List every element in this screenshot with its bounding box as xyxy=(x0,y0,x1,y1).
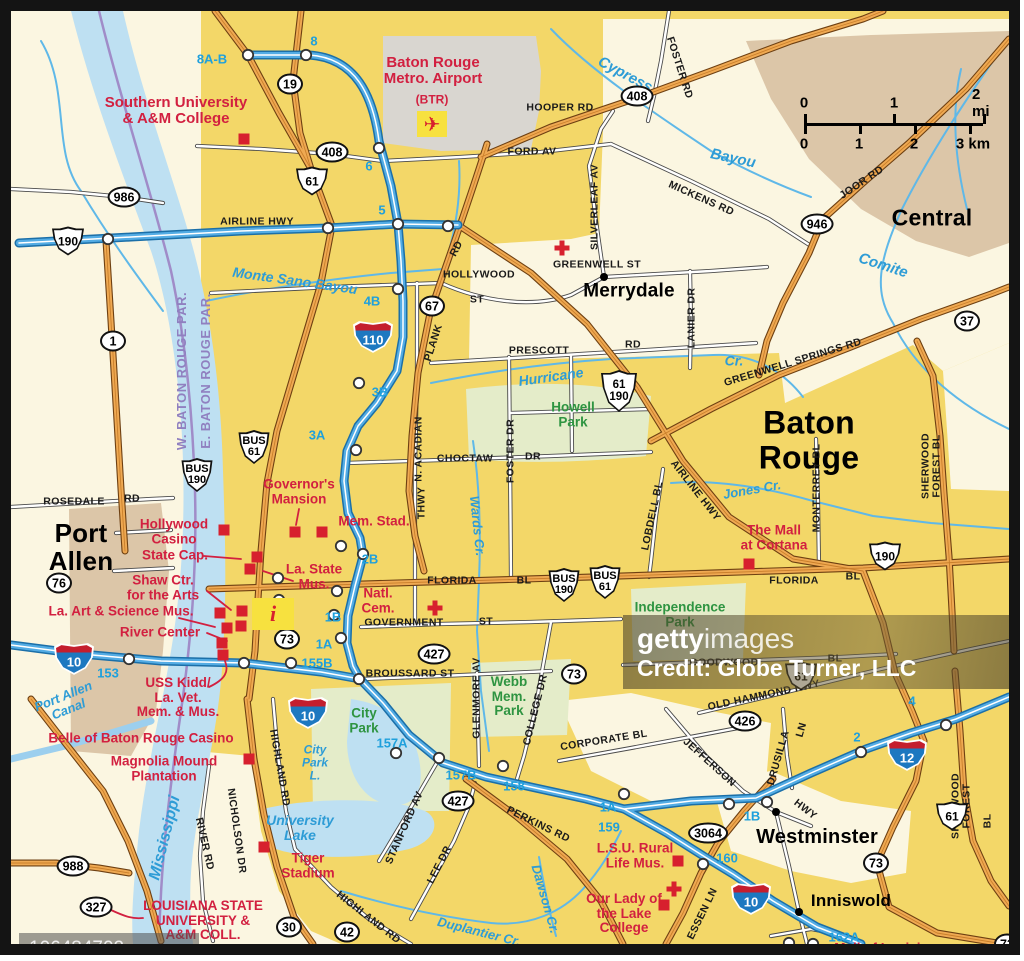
poi-square-marker xyxy=(222,623,233,634)
exit-number: 2 xyxy=(853,730,860,745)
route-shield: 73 xyxy=(561,664,587,685)
map-screenshot: Port AllenMerrydaleBaton RougeCentralWes… xyxy=(0,0,1024,961)
route-shield: 73 xyxy=(994,934,1020,955)
exit-number: 162A xyxy=(828,930,859,945)
poi-square-marker xyxy=(245,564,256,575)
route-shield: 408 xyxy=(316,142,349,163)
watermark-image-id: 106484702 xyxy=(19,933,199,955)
exit-number: 159 xyxy=(598,820,620,835)
exit-number: 4 xyxy=(908,694,915,709)
poi-square-marker xyxy=(290,527,301,538)
scale-label-km: 1 xyxy=(855,136,863,153)
poi-square-marker xyxy=(744,559,755,570)
interstate-number: 12 xyxy=(900,751,914,766)
airplane-icon: ✈ xyxy=(417,111,447,137)
hospital-cross-icon xyxy=(667,882,682,897)
exit-number: 3B xyxy=(372,385,389,400)
route-shield: 986 xyxy=(108,187,141,208)
interstate-number: 110 xyxy=(363,333,384,348)
watermark-credit: Credit: Globe Turner, LLC xyxy=(637,655,916,682)
route-shield: 73 xyxy=(863,853,889,874)
watermark-getty-bold: getty xyxy=(637,623,704,654)
scale-bar-km-tick xyxy=(914,124,917,134)
poi-square-marker xyxy=(673,856,684,867)
scale-bar-km-tick xyxy=(969,124,972,134)
exit-number: 155B xyxy=(301,656,332,671)
route-shield: 67 xyxy=(419,296,445,317)
poi-square-marker xyxy=(218,650,229,661)
scale-bar-km-tick xyxy=(804,124,807,134)
scale-label-mi: 2 mi xyxy=(972,86,998,120)
hospital-cross-icon xyxy=(428,601,443,616)
exit-number: 1A xyxy=(600,800,617,815)
scale-bar-mi-tick xyxy=(804,114,807,124)
scale-label-km: 2 xyxy=(910,136,918,153)
poi-square-marker xyxy=(215,608,226,619)
watermark-getty-band: gettyimages Credit: Globe Turner, LLC xyxy=(623,615,1020,689)
map-canvas[interactable]: Port AllenMerrydaleBaton RougeCentralWes… xyxy=(0,0,1020,955)
route-shield: 73 xyxy=(274,629,300,650)
interstate-number: 10 xyxy=(67,655,81,670)
route-shield: 426 xyxy=(729,711,762,732)
poi-square-marker xyxy=(244,754,255,765)
route-shield: 37 xyxy=(954,311,980,332)
watermark-getty-light: images xyxy=(704,623,794,654)
town-dot-marker xyxy=(600,273,608,281)
route-shield: 1 xyxy=(100,331,126,352)
exit-number: 160 xyxy=(716,851,738,866)
exit-number: 3A xyxy=(309,428,326,443)
scale-label-mi: 1 xyxy=(890,95,898,112)
route-shield: 42 xyxy=(334,922,360,943)
route-shield: 988 xyxy=(57,856,90,877)
exit-number: 2B xyxy=(362,552,379,567)
exit-number: 4B xyxy=(364,294,381,309)
scale-label-km: 0 xyxy=(800,136,808,153)
watermark-getty-logo: gettyimages xyxy=(637,623,794,655)
poi-square-marker xyxy=(237,606,248,617)
exit-number: 157B xyxy=(445,768,476,783)
town-dot-marker xyxy=(795,908,803,916)
route-shield: 408 xyxy=(621,86,654,107)
poi-square-marker xyxy=(659,900,670,911)
exit-number: 158 xyxy=(503,779,525,794)
route-shield: 427 xyxy=(442,791,475,812)
route-shield: 30 xyxy=(276,917,302,938)
exit-number: 157A xyxy=(376,736,407,751)
interstate-number: 10 xyxy=(301,709,315,724)
route-shield: 19 xyxy=(277,74,303,95)
poi-square-marker xyxy=(239,134,250,145)
exit-number: 8A-B xyxy=(197,52,227,67)
poi-square-marker xyxy=(236,621,247,632)
exit-number: 5 xyxy=(378,203,385,218)
exit-number: 153 xyxy=(97,666,119,681)
route-shield: 427 xyxy=(418,644,451,665)
poi-square-marker xyxy=(259,842,270,853)
poi-square-marker xyxy=(217,638,228,649)
interstate-number: 10 xyxy=(744,895,758,910)
route-shield: 76 xyxy=(46,573,72,594)
exit-number: 8 xyxy=(310,34,317,49)
scale-label-km: 3 km xyxy=(956,136,990,153)
information-icon: i xyxy=(252,598,294,630)
exit-number: 6 xyxy=(365,159,372,174)
route-shield: 3064 xyxy=(688,823,728,844)
scale-label-mi: 0 xyxy=(800,95,808,112)
route-shield: 327 xyxy=(80,897,113,918)
town-dot-marker xyxy=(772,808,780,816)
exit-number: 1B xyxy=(744,809,761,824)
poi-square-marker xyxy=(317,527,328,538)
scale-bar-km-tick xyxy=(859,124,862,134)
route-shield: 946 xyxy=(801,214,834,235)
scale-bar-mi-tick xyxy=(893,114,896,124)
poi-square-marker xyxy=(786,952,797,956)
scale-bar: 012 mi0123 km xyxy=(791,91,1011,151)
exit-number: 1B xyxy=(325,610,342,625)
hospital-cross-icon xyxy=(555,241,570,256)
exit-number: 1A xyxy=(316,637,333,652)
poi-square-marker xyxy=(252,552,263,563)
poi-square-marker xyxy=(219,525,230,536)
